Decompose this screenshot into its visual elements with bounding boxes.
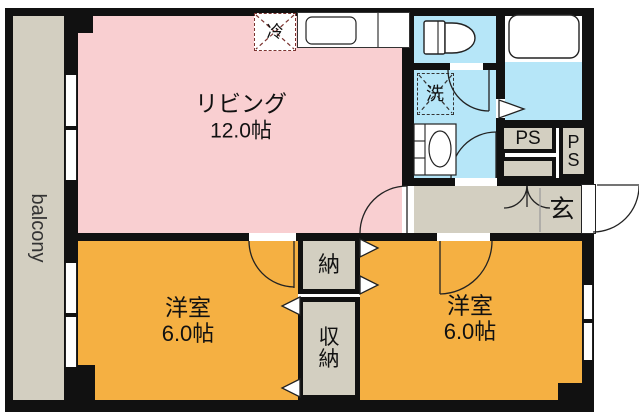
pipe-space-lower-box: [500, 157, 556, 180]
kitchen-counter: [297, 12, 410, 48]
toilet-door-opening: [450, 63, 483, 70]
entrance-door-arc: [593, 186, 639, 232]
bedroom-left-label: 洋室: [165, 297, 211, 320]
wall-washroom-hall: [402, 178, 594, 186]
entrance-label: 玄: [549, 198, 574, 223]
closet-label: 収納: [318, 327, 341, 370]
pillar-bottom-left: [64, 365, 95, 400]
bedroom-right-door-opening: [437, 233, 490, 241]
wall-bottom: [5, 400, 594, 412]
pipe-space-2-label: PS: [567, 133, 580, 170]
bedroom-right-size: 6.0帖: [444, 321, 497, 343]
bathtub-band: [505, 14, 582, 62]
closet-box: 収納: [298, 297, 360, 400]
wall-left-outer: [5, 8, 13, 412]
bath-fold-opening: [496, 99, 505, 118]
living-room-label: リビング: [195, 93, 287, 116]
bedroom-left-door-opening: [249, 233, 296, 241]
entrance-door-leaf: [581, 184, 596, 234]
balcony-label: balcony: [28, 194, 48, 263]
window-bedroom-right-tick: [583, 319, 593, 323]
storage-box: 納: [298, 236, 360, 294]
pillar-bottom-right: [558, 383, 594, 400]
living-door-opening: [402, 186, 414, 233]
refrigerator-label: 冷: [267, 24, 284, 41]
pipe-space-1-box: PS: [500, 124, 556, 153]
bedroom-right-label: 洋室: [447, 295, 493, 318]
pipe-space-1-label: PS: [515, 129, 540, 148]
pipe-space-2-box: PS: [559, 124, 588, 178]
pillar-top-left: [64, 8, 93, 33]
washing-machine-label: 洗: [426, 85, 444, 103]
window-bedroom-left-tick: [65, 313, 77, 317]
bedroom-left-size: 6.0帖: [162, 323, 215, 345]
window-living-left-tick: [65, 126, 77, 130]
living-room-size: 12.0帖: [210, 121, 272, 142]
storage-label: 納: [318, 254, 340, 276]
floorplan: 納 収納 PS PS: [0, 0, 639, 418]
washroom-door-opening: [455, 178, 497, 186]
